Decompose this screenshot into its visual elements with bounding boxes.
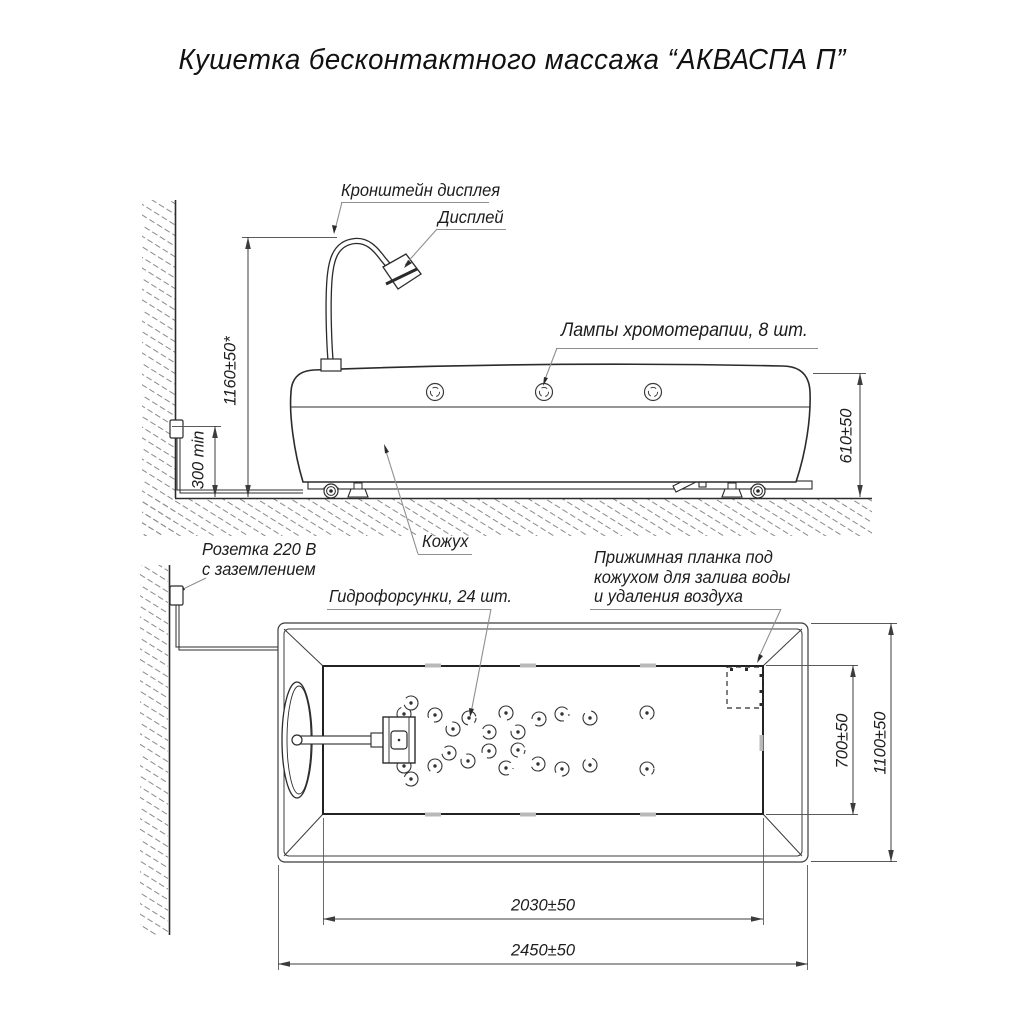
nozzle: [462, 711, 476, 725]
floor-section-hatch: [142, 499, 872, 537]
nozzle: [511, 743, 525, 757]
socket-plan: [170, 586, 278, 650]
nozzle: [428, 708, 442, 722]
display-bracket-arm: [321, 241, 394, 371]
label-nozzles: Гидрофорсунки, 24 шт.: [329, 587, 524, 607]
nozzle: [555, 762, 569, 776]
dim-text-300: 300 min: [190, 431, 209, 490]
nozzle: [404, 696, 418, 710]
drawing-linework: [0, 0, 1024, 1024]
wall-section-hatch: [142, 200, 176, 536]
label-cover: Кожух: [422, 532, 471, 552]
nozzle: [583, 711, 597, 725]
nozzle: [461, 754, 475, 768]
lamp: [536, 384, 553, 401]
label-display-bracket: Кронштейн дисплея: [341, 181, 510, 201]
label-display: Дисплей: [438, 208, 508, 228]
couch-body: [291, 364, 811, 482]
label-clamp-bar: Прижимная планка под кожухом для залива …: [594, 548, 803, 607]
lamp: [427, 384, 444, 401]
label-socket: Розетка 220 В с заземлением: [202, 540, 324, 579]
nozzle: [511, 725, 525, 739]
dim-text-700: 700±50: [834, 714, 853, 769]
nozzle: [640, 762, 654, 776]
nozzle: [499, 706, 513, 720]
nozzle: [531, 757, 545, 771]
nozzle: [532, 712, 546, 726]
drawing-title: Кушетка бесконтактного массажа “АКВАСПА …: [32, 44, 992, 77]
nozzle: [583, 758, 597, 772]
dim-text-610: 610±50: [838, 409, 857, 464]
technical-drawing-sheet: Кушетка бесконтактного массажа “АКВАСПА …: [0, 0, 1024, 1024]
nozzle: [555, 707, 569, 721]
nozzle: [404, 772, 418, 786]
label-lamps: Лампы хромотерапии, 8 шт.: [561, 320, 824, 341]
dim-text-1100: 1100±50: [872, 712, 891, 775]
dim-text-2030: 2030±50: [511, 897, 575, 916]
nozzle: [482, 744, 496, 758]
nozzle: [428, 759, 442, 773]
lamp: [645, 384, 662, 401]
nozzle: [446, 722, 460, 736]
display-head: [383, 254, 421, 289]
dim-text-1160: 1160±50*: [222, 336, 241, 405]
side-view: [142, 200, 872, 592]
caster-right: [751, 484, 765, 498]
nozzle: [442, 746, 456, 760]
leader-display: [404, 229, 506, 268]
nozzle: [499, 761, 513, 775]
wall-plan-hatch: [140, 565, 170, 935]
nozzle: [482, 725, 496, 739]
nozzle: [640, 706, 654, 720]
dim-text-2450: 2450±50: [511, 942, 575, 961]
caster-left: [324, 484, 338, 498]
